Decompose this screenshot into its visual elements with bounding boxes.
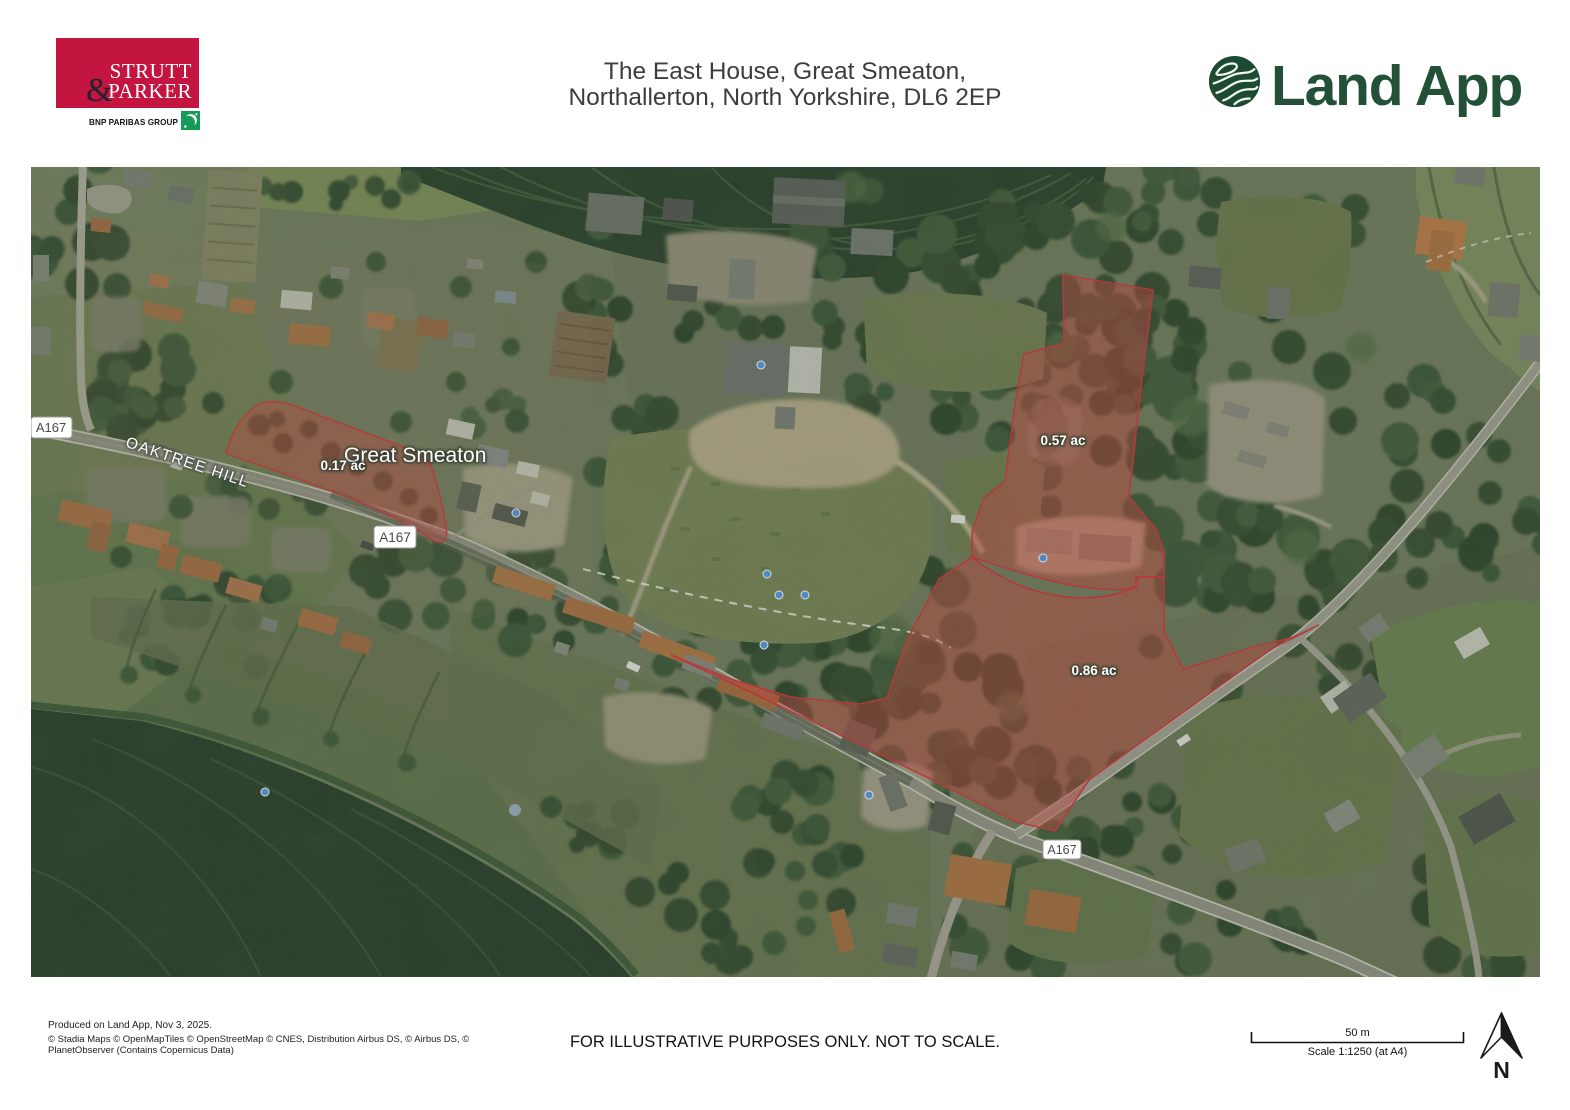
svg-text:0.86 ac: 0.86 ac [1071, 663, 1117, 678]
svg-text:0.57 ac: 0.57 ac [1040, 433, 1086, 448]
svg-text:0.17 ac: 0.17 ac [320, 458, 366, 473]
svg-text:A167: A167 [379, 530, 411, 545]
svg-text:A167: A167 [1047, 843, 1076, 857]
svg-text:A167: A167 [36, 420, 66, 435]
svg-text:N: N [1493, 1057, 1510, 1083]
